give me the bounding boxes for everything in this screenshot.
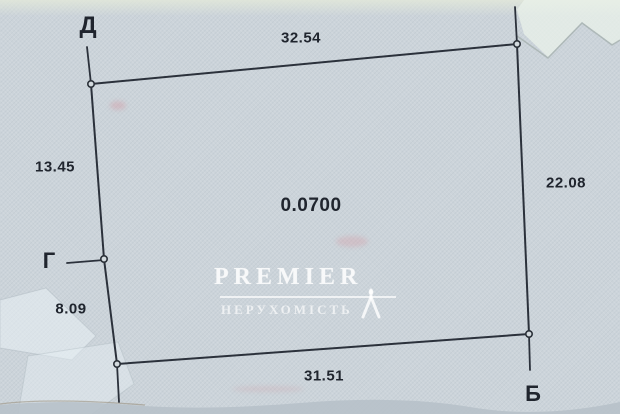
side-length-bottom: 31.51 bbox=[304, 368, 344, 385]
watermark-brand: Premier bbox=[214, 258, 419, 290]
compass-icon bbox=[358, 288, 384, 320]
extension-below-b bbox=[529, 334, 530, 370]
vertex-label-d: Д bbox=[79, 12, 96, 40]
area-value: 0.0700 bbox=[280, 195, 341, 217]
boundary-side-left bbox=[91, 84, 117, 364]
watermark-subtitle: НЕРУХОМІСТЬ bbox=[221, 302, 353, 318]
scan-artifact-top-right bbox=[517, 0, 620, 58]
watermark: Premier НЕРУХОМІСТЬ bbox=[214, 258, 419, 290]
tick-at-g bbox=[67, 260, 104, 263]
vertex-label-g: Г bbox=[43, 248, 55, 274]
boundary-side-right bbox=[517, 44, 529, 334]
side-length-right: 22.08 bbox=[546, 175, 586, 192]
extension-above-top-right bbox=[515, 7, 517, 44]
side-length-left-lower: 8.09 bbox=[55, 301, 86, 318]
boundary-side-top bbox=[91, 44, 517, 84]
vertex-marker-top-right bbox=[514, 41, 520, 47]
side-length-top: 32.54 bbox=[281, 30, 321, 47]
side-length-left-upper: 13.45 bbox=[35, 159, 75, 176]
vertex-marker-b bbox=[526, 331, 532, 337]
scanned-cadastral-plan: Д Г Б 32.54 13.45 8.09 22.08 31.51 0.070… bbox=[0, 0, 620, 414]
vertex-marker-d bbox=[88, 81, 94, 87]
extension-above-d bbox=[87, 47, 91, 84]
vertex-label-b: Б bbox=[525, 381, 541, 407]
vertex-marker-g bbox=[101, 256, 107, 262]
boundary-side-bottom bbox=[117, 334, 529, 364]
vertex-marker-bottom-left bbox=[114, 361, 120, 367]
